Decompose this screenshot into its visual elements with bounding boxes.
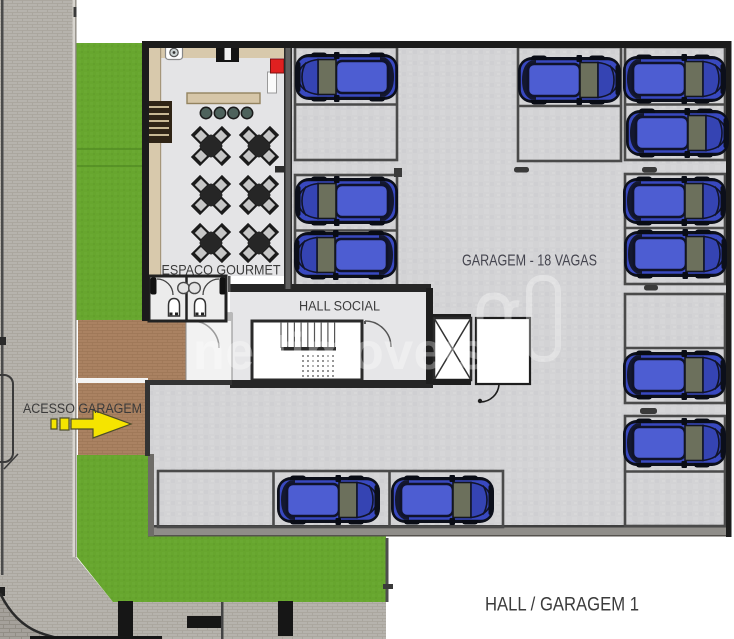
svg-text:HALL SOCIAL: HALL SOCIAL [299, 299, 380, 314]
svg-text:ESPACO GOURMET: ESPACO GOURMET [162, 262, 281, 278]
svg-text:ACESSO GARAGEM: ACESSO GARAGEM [23, 401, 142, 416]
svg-text:nettimoveis: nettimoveis [193, 323, 487, 381]
svg-text:HALL / GARAGEM 1: HALL / GARAGEM 1 [485, 594, 639, 616]
svg-text:GARAGEM - 18 VAGAS: GARAGEM - 18 VAGAS [462, 253, 597, 270]
